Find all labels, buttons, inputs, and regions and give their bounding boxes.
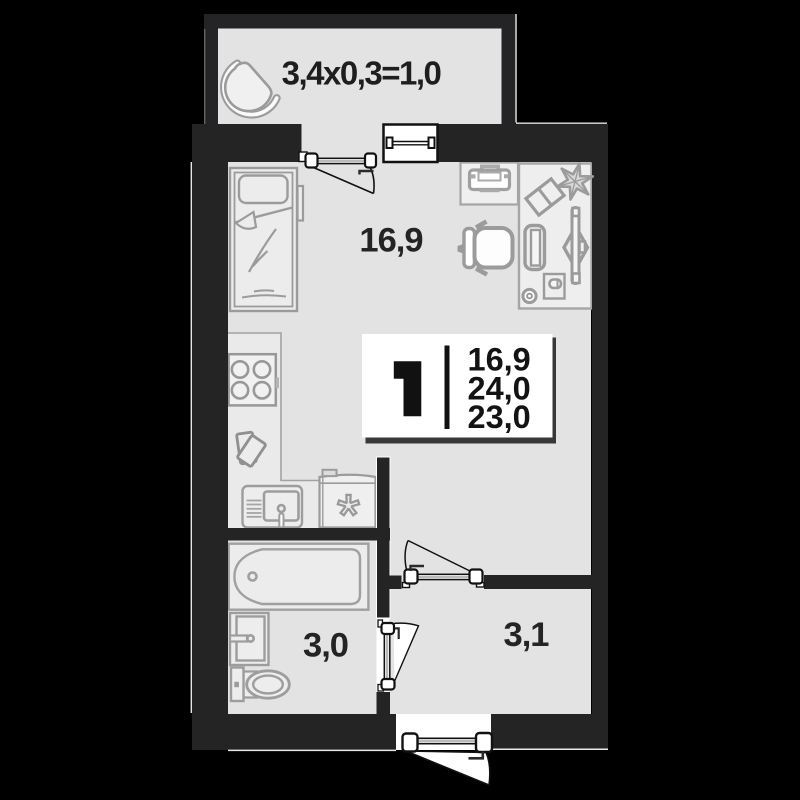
svg-text:3,4x0,3=1,0: 3,4x0,3=1,0 — [282, 55, 441, 92]
svg-text:16,9: 16,9 — [359, 222, 422, 260]
svg-text:3,0: 3,0 — [303, 627, 348, 665]
svg-text:3,1: 3,1 — [504, 616, 550, 654]
svg-text:23,0: 23,0 — [468, 399, 531, 435]
